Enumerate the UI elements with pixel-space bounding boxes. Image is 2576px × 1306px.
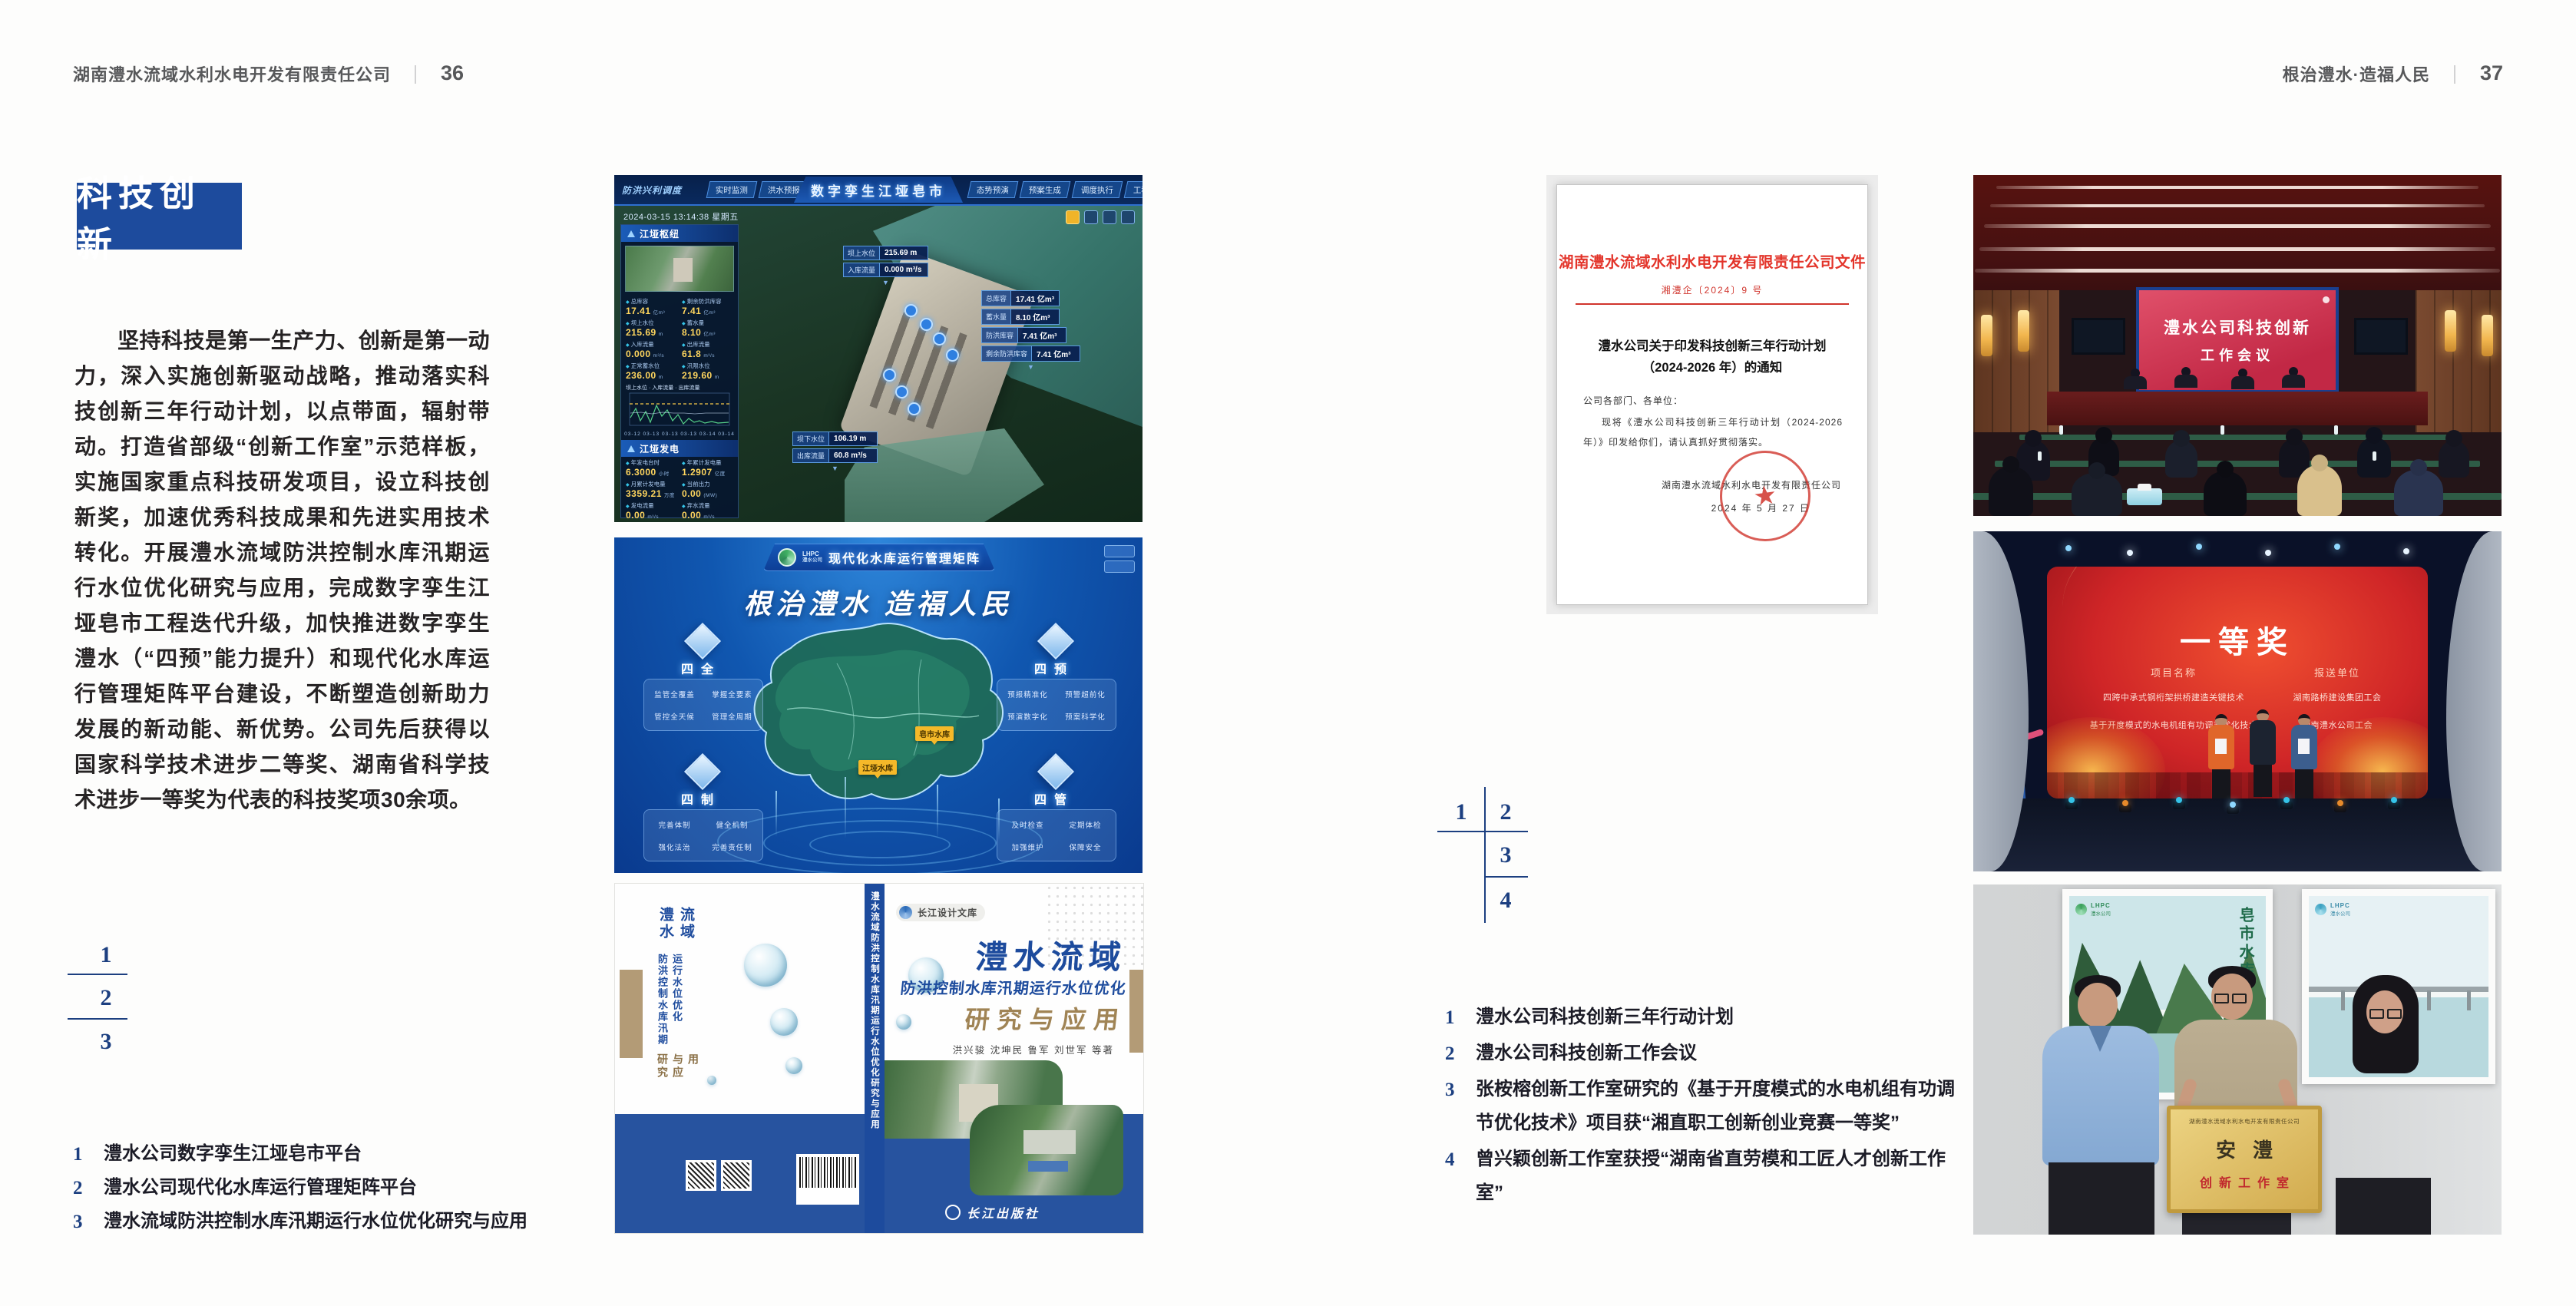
logo-dot-icon	[2323, 296, 2330, 303]
person-head	[2078, 983, 2118, 1027]
lhpc-logo: LHPC澧水公司	[2075, 902, 2111, 917]
toolbar-chip-icon	[1104, 560, 1135, 573]
caption-number: 3	[1445, 1080, 1462, 1101]
generation-stats: 年发电台时6.3000小时 年累计发电量1.2907亿度 月累计发电量3359.…	[621, 457, 738, 522]
chart-legend: 坝上水位 · 入库流量 · 出库流量	[621, 382, 738, 392]
person-torso-white-tee	[2330, 1035, 2437, 1181]
callout-upstream: 坝上水位215.69 m 入库流量0.000 m³/s ▼	[843, 246, 928, 286]
person-pants	[2336, 1178, 2431, 1235]
user-icon	[1066, 210, 1080, 224]
attendee-silhouette	[2165, 441, 2197, 478]
innovation-studio-plaque: 湖南澧水流域水利水电开发有限责任公司 安澧 创新工作室	[2167, 1106, 2322, 1213]
caption-text: 曾兴颖创新工作室获授“湖南省直劳模和工匠人才创新工作室”	[1476, 1142, 1961, 1210]
series-badge: 长江设计文库	[896, 904, 985, 921]
awardee-orange	[2208, 714, 2234, 802]
cover-title-line3: 研究与应用	[875, 1000, 1129, 1036]
figure-book-cover: 澧水流域 防洪控制水库汛期运行水位优化 研究与应用 澧水流域防洪控制水库汛期运行…	[614, 883, 1144, 1234]
caption-number: 1	[1445, 1007, 1462, 1029]
bridge-pier	[2341, 990, 2345, 1010]
figure-index-1: 1	[1446, 799, 1476, 825]
calligraphy-slogan: 根治澧水 造福人民	[614, 582, 1143, 622]
quadrant-label: 四预	[997, 659, 1112, 677]
index-divider-line	[1484, 787, 1486, 923]
header-divider: ｜	[2445, 60, 2465, 87]
figure-digital-twin-platform: 防洪兴利调度 实时监测 洪水预报 防洪预警 数字孪生江垭皂市 态势预演 预案生成…	[614, 175, 1143, 522]
desk-row	[1995, 461, 2480, 467]
gate-marker-icon	[883, 369, 896, 382]
panel-header: 江垭枢纽	[621, 225, 738, 242]
water-bottle-icon	[2334, 425, 2338, 435]
ceiling-light	[1979, 247, 2495, 251]
speaker-silhouette	[2174, 367, 2197, 388]
caption-number: 4	[1445, 1149, 1462, 1171]
lhpc-logo-icon	[2315, 904, 2326, 915]
section-title-label: 科技创新	[77, 166, 242, 267]
water-bottle-icon	[2373, 451, 2376, 461]
publisher-name: 长江出版社	[967, 1203, 1040, 1222]
unit-name: 湖南路桥建设集团工会	[2249, 691, 2426, 703]
attendee-silhouette	[1989, 467, 2033, 516]
wall-lamp-icon	[2445, 310, 2456, 352]
page-header-left: 湖南澧水流域水利水电开发有限责任公司 ｜ 36	[73, 60, 464, 87]
watershed-map	[745, 617, 1014, 809]
moving-head-light-icon	[2227, 806, 2239, 814]
ceiling-light	[1984, 224, 2491, 228]
mode-label: 防洪兴利调度	[622, 184, 682, 197]
index-divider-line	[1485, 876, 1528, 878]
monitor-icon	[684, 623, 721, 660]
lhpc-logo-icon	[778, 548, 796, 567]
attendee-silhouette	[2439, 441, 2469, 478]
brochure-spread: 湖南澧水流域水利水电开发有限责任公司 ｜ 36 根治澧水·造福人民 ｜ 37 科…	[0, 0, 2576, 1306]
ceiling-light	[1975, 269, 2500, 273]
pointer-icon: ▼	[843, 279, 928, 286]
chart-x-labels: 03-12 03-13 03-13 03-13 03-14 03-14	[621, 431, 738, 437]
plaque-title: 安澧	[2171, 1135, 2318, 1163]
side-wall	[2416, 290, 2502, 432]
water-droplet-icon	[770, 1008, 798, 1036]
figure-index-4: 4	[1490, 888, 1521, 914]
attendee-silhouette	[2394, 470, 2443, 516]
wall-tv	[2354, 318, 2408, 355]
red-rule	[1576, 303, 1849, 305]
authors-line: 洪兴骏 沈坤民 鲁军 刘世军 等著	[876, 1042, 1114, 1056]
wall-tv	[2072, 318, 2125, 355]
caption-row: 2 澧水公司现代化水库运行管理矩阵平台	[73, 1178, 534, 1205]
quadrant-label: 四全	[643, 659, 759, 677]
dam-photo	[970, 1105, 1123, 1195]
index-divider-line	[68, 1018, 127, 1020]
platform-title: 现代化水库运行管理矩阵	[828, 548, 980, 567]
water-droplet-icon	[785, 1057, 802, 1074]
tab-situation-rehearsal: 态势预演	[967, 181, 1019, 198]
light-pillar	[937, 785, 938, 838]
document-page: 湖南澧水流域水利水电开发有限责任公司文件 湘澧企〔2024〕9 号 澧水公司关于…	[1556, 184, 1868, 605]
caption-number: 2	[73, 1178, 90, 1199]
lhpc-logo-text: LHPC澧水公司	[802, 551, 822, 564]
document-body: 现将《澧水公司科技创新三年行动计划（2024-2026 年）》印发给你们，请认真…	[1583, 412, 1843, 452]
award-title: 一等奖	[2047, 617, 2428, 662]
page-header-right: 根治澧水·造福人民 ｜ 37	[2283, 60, 2503, 87]
sail-icon	[627, 230, 635, 237]
figure-index-3: 3	[91, 1029, 121, 1055]
water-bottle-icon	[2038, 451, 2042, 461]
quadrant-panel: 监管全覆盖掌握全要素 管控全天候管理全周期	[643, 679, 763, 731]
callout-capacity: 总库容17.41 亿m³ 蓄水量8.10 亿m³ 防洪库容7.41 亿m³ 剩余…	[981, 290, 1080, 370]
back-cover-title: 澧水流域 防洪控制水库汛期运行水位优化 研究与应用	[655, 907, 701, 1091]
toolbar-icons	[1066, 210, 1135, 224]
plaque-header: 湖南澧水流域水利水电开发有限责任公司	[2171, 1117, 2318, 1126]
figure-index-1: 1	[91, 942, 121, 968]
stage-light-icon	[2127, 550, 2133, 556]
gate-marker-icon	[946, 349, 959, 362]
cover-title-line2: 防洪控制水库汛期运行水位优化	[844, 976, 1127, 998]
stage-light-icon	[2196, 544, 2202, 550]
caption-text: 澧水公司科技创新工作会议	[1476, 1037, 1697, 1070]
caption-text: 张桉榕创新工作室研究的《基于开度模式的水电机组有功调节优化技术》项目获“湘直职工…	[1476, 1073, 1959, 1140]
barcode-icon	[796, 1154, 859, 1205]
attendee-silhouette	[2072, 473, 2122, 516]
gate-marker-icon	[895, 385, 908, 398]
quadrant-label: 四管	[997, 789, 1112, 808]
screen-title-line2: 工作会议	[2201, 345, 2274, 365]
official-seal-icon: ★	[1714, 445, 1816, 547]
layers-icon	[1084, 210, 1098, 224]
publisher-block: 长江出版社	[945, 1203, 1040, 1222]
plaque-subtitle: 创新工作室	[2171, 1172, 2318, 1191]
moving-head-light-icon	[2334, 805, 2346, 812]
person-pants	[2049, 1162, 2154, 1235]
wall-lamp-icon	[2018, 310, 2029, 352]
speaker-silhouette	[2124, 369, 2147, 389]
index-divider-line	[68, 974, 127, 975]
moving-head-light-icon	[2173, 802, 2185, 809]
body-paragraph: 坚持科技是第一生产力、创新是第一动力，深入实施创新驱动战略，推动落实科技创新三年…	[74, 323, 490, 818]
figure-index-2: 2	[91, 985, 121, 1011]
wall-lamp-icon	[1981, 315, 1992, 356]
caption-text: 澧水公司现代化水库运行管理矩阵平台	[104, 1171, 417, 1205]
bridge-pier	[2467, 990, 2471, 1010]
ceiling-light	[1996, 186, 2478, 189]
tab-project-management: 工程管理	[1124, 181, 1143, 198]
gate-marker-icon	[904, 304, 918, 317]
cover-accent-block	[1129, 970, 1143, 1053]
caption-row: 4 曾兴颖创新工作室获授“湖南省直劳模和工匠人才创新工作室”	[1445, 1149, 1961, 1210]
project-name: 四跨中承式钢桁架拱桥建造关键技术	[2085, 691, 2262, 703]
water-droplet-icon	[707, 1076, 716, 1085]
changjiang-design-logo-icon	[899, 906, 912, 919]
figure-meeting-photo: 澧水公司科技创新 工作会议	[1973, 175, 2502, 516]
rostrum-table	[2047, 392, 2428, 425]
caption-row: 3 澧水流域防洪控制水库汛期运行水位优化研究与应用	[73, 1212, 534, 1238]
light-pillar	[775, 791, 777, 837]
caption-row: 2 澧水公司科技创新工作会议	[1445, 1043, 1952, 1070]
company-name: 湖南澧水流域水利水电开发有限责任公司	[73, 61, 391, 86]
stage-light-icon	[2065, 545, 2072, 551]
city-silhouette	[2047, 772, 2428, 798]
figure-index-3: 3	[1490, 842, 1521, 868]
institution-icon	[684, 753, 721, 790]
speaker-silhouette	[2231, 369, 2254, 389]
caption-number: 2	[1445, 1043, 1462, 1065]
moving-head-light-icon	[2065, 802, 2078, 809]
column-header-project: 项目名称	[2089, 665, 2258, 679]
panel-header: 江垭发电	[621, 440, 738, 457]
slogan-text: 根治澧水·造福人民	[2283, 61, 2430, 86]
stage-light-icon	[2403, 548, 2409, 554]
right-tab-group: 态势预演 预案生成 调度执行 工程管理	[969, 181, 1143, 198]
awardee-blue	[2291, 714, 2317, 802]
caption-row: 1 澧水公司数字孪生江垭皂市平台	[73, 1144, 534, 1171]
salutation: 公司各部门、各单位：	[1583, 394, 1683, 407]
section-title: 科技创新	[77, 183, 242, 250]
pointer-icon: ▼	[792, 465, 878, 471]
map-marker-zaoshi: 皂市水库	[915, 726, 954, 741]
panel-title: 江垭枢纽	[640, 227, 680, 240]
caption-number: 1	[73, 1144, 90, 1165]
platform-ring	[809, 831, 951, 858]
ceiling	[1973, 175, 2502, 290]
page-number-36: 36	[441, 61, 464, 85]
glasses-icon	[2369, 1009, 2402, 1019]
figure-award-stage-photo: 一等奖 项目名称 报送单位 四跨中承式钢桁架拱桥建造关键技术 湖南路桥建设集团工…	[1973, 531, 2502, 871]
figure-plaque-photo: LHPC澧水公司 皂市水库 LHPC澧水公司	[1973, 884, 2502, 1235]
platform-title: 数字孪生江垭皂市	[794, 177, 963, 203]
screen-title-line1: 澧水公司科技创新	[2164, 316, 2311, 339]
qr-code-icon	[686, 1160, 716, 1191]
stage-light-icon	[2334, 544, 2340, 550]
map-marker-jiangya: 江垭水库	[858, 760, 897, 775]
quadrant-label: 四制	[643, 789, 759, 808]
gate-marker-icon	[908, 402, 921, 415]
publisher-logo-icon	[945, 1205, 961, 1220]
pointer-icon: ▼	[981, 364, 1080, 370]
hub-data-panel: 江垭枢纽 总库容17.41亿m³ 剩余防洪库容7.41亿m³ 坝上水位215.6…	[620, 224, 739, 518]
bridge-pier	[2427, 990, 2431, 1010]
document-number: 湘澧企〔2024〕9 号	[1557, 283, 1867, 296]
tab-plan-generation: 预案生成	[1020, 181, 1071, 198]
sail-icon	[627, 445, 635, 452]
locate-icon	[1103, 210, 1116, 224]
tab-dispatch-execution: 调度执行	[1072, 181, 1123, 198]
caption-text: 澧水公司科技创新三年行动计划	[1476, 1000, 1734, 1034]
light-pillar	[998, 798, 1000, 841]
moving-head-light-icon	[2280, 802, 2293, 809]
ceiling-light	[1990, 204, 2485, 207]
toolbar-chip-icon	[1104, 545, 1135, 557]
gate-marker-icon	[933, 332, 946, 346]
light-pillar	[845, 777, 846, 838]
attendee-silhouette	[2204, 471, 2247, 516]
figure-index-2: 2	[1490, 799, 1521, 825]
lhpc-logo-icon	[2075, 904, 2087, 915]
column-header-unit: 报送单位	[2253, 665, 2422, 679]
tissue-box	[2127, 488, 2162, 505]
index-divider-line	[1437, 831, 1528, 832]
maintenance-icon	[1037, 753, 1074, 790]
series-label: 长江设计文库	[918, 906, 977, 919]
qr-code-icon	[721, 1160, 752, 1191]
lhpc-logo: LHPC澧水公司	[2315, 902, 2350, 917]
platform-header: LHPC澧水公司 现代化水库运行管理矩阵	[763, 544, 995, 571]
panel-title: 江垭发电	[640, 442, 680, 455]
water-droplet-icon	[744, 944, 787, 987]
datetime-label: 2024-03-15 13:14:38 星期五	[623, 210, 739, 223]
cover-accent-block	[620, 970, 643, 1058]
speaker-silhouette	[2282, 367, 2305, 388]
water-level-chart	[626, 392, 733, 431]
figure-matrix-platform: LHPC澧水公司 现代化水库运行管理矩阵 根治澧水 造福人民 皂市水库 江垭水库…	[614, 537, 1143, 873]
moving-head-light-icon	[2388, 802, 2400, 809]
moving-head-light-icon	[2119, 805, 2131, 812]
attendee-silhouette	[2297, 465, 2342, 516]
document-title: 澧水公司关于印发科技创新三年行动计划 （2024-2026 年）的通知	[1557, 336, 1867, 379]
document-red-header: 湖南澧水流域水利水电开发有限责任公司文件	[1557, 250, 1867, 272]
hub-stats: 总库容17.41亿m³ 剩余防洪库容7.41亿m³ 坝上水位215.69m 蓄水…	[621, 296, 738, 382]
caption-number: 3	[73, 1212, 90, 1233]
tab-realtime-monitoring: 实时监测	[706, 181, 758, 198]
cover-title-line1: 澧水流域	[875, 931, 1128, 978]
glasses-icon	[2214, 994, 2247, 1003]
settings-icon	[1121, 210, 1135, 224]
seal-star-icon: ★	[1751, 479, 1779, 513]
stage-light-icon	[2265, 550, 2271, 556]
desk-row	[2019, 435, 2455, 440]
water-bottle-icon	[2221, 425, 2224, 435]
presenter-suit	[2250, 709, 2276, 797]
dam-thumbnail	[625, 246, 734, 292]
led-screen: 一等奖 项目名称 报送单位 四跨中承式钢桁架拱桥建造关键技术 湖南路桥建设集团工…	[2047, 567, 2428, 798]
header-divider: ｜	[406, 60, 425, 87]
caption-text: 澧水流域防洪控制水库汛期运行水位优化研究与应用	[104, 1205, 527, 1238]
gate-marker-icon	[920, 318, 933, 331]
forecast-icon	[1037, 623, 1074, 660]
caption-row: 3 张桉榕创新工作室研究的《基于开度模式的水电机组有功调节优化技术》项目获“湘直…	[1445, 1080, 1961, 1140]
caption-text: 澧水公司数字孪生江垭皂市平台	[104, 1137, 362, 1171]
wall-lamp-icon	[2482, 315, 2493, 356]
callout-downstream: 坝下水位106.19 m 出库流量60.8 m³/s ▼	[792, 431, 878, 471]
caption-row: 1 澧水公司科技创新三年行动计划	[1445, 1007, 1952, 1034]
water-bottle-icon	[2059, 425, 2063, 435]
quadrant-panel: 预报精准化预警超前化 预演数字化预案科学化	[997, 679, 1116, 731]
page-number-37: 37	[2480, 61, 2503, 85]
figure-official-document: 湖南澧水流域水利水电开发有限责任公司文件 湘澧企〔2024〕9 号 澧水公司关于…	[1546, 175, 1878, 614]
